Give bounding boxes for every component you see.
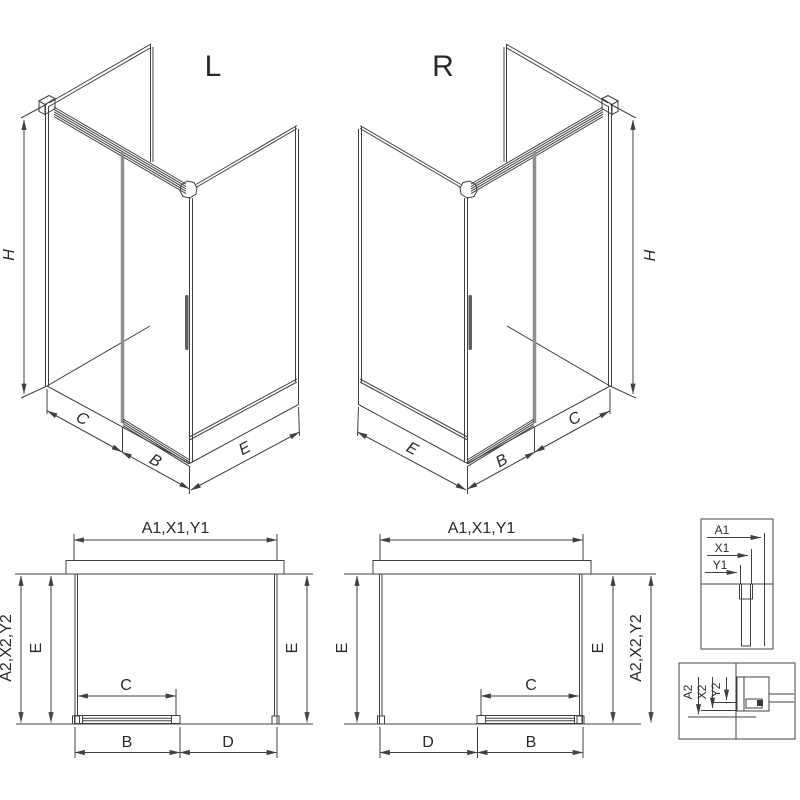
dim-label-e: E: [284, 643, 301, 654]
roller-detail: [757, 700, 763, 706]
detail-label-a2: A2: [681, 684, 695, 699]
dim-label-b: B: [122, 734, 133, 751]
dim-label-d: D: [222, 734, 234, 751]
view-label-left: L: [205, 50, 222, 83]
detail-label-x1: X1: [715, 541, 730, 555]
door-handle: [469, 295, 473, 350]
drawing-sheet: L: [0, 0, 800, 800]
dim-label-a2x2y2: A2,X2,Y2: [628, 614, 645, 682]
technical-drawing-canvas: L: [0, 0, 800, 800]
dim-label-b: B: [526, 734, 537, 751]
view-label-right: R: [432, 50, 454, 83]
detail-label-x2: X2: [695, 684, 709, 699]
dim-label-a2x2y2: A2,X2,Y2: [0, 614, 15, 682]
dim-label-d: D: [422, 734, 434, 751]
detail-label-y1: Y1: [713, 558, 728, 572]
dim-label-c: C: [525, 677, 537, 694]
dim-label-e: E: [590, 643, 607, 654]
detail-label-y2: Y2: [709, 682, 723, 697]
detail-label-a1: A1: [715, 523, 730, 537]
dim-label-e: E: [334, 643, 351, 654]
door-handle: [185, 295, 189, 350]
dim-label-a1x1y1: A1,X1,Y1: [142, 520, 210, 537]
dim-label-h: H: [1, 249, 18, 261]
dim-label-h: H: [640, 249, 657, 261]
dim-label-e: E: [28, 643, 45, 654]
dim-label-a1x1y1: A1,X1,Y1: [448, 520, 516, 537]
dim-label-c: C: [120, 677, 132, 694]
